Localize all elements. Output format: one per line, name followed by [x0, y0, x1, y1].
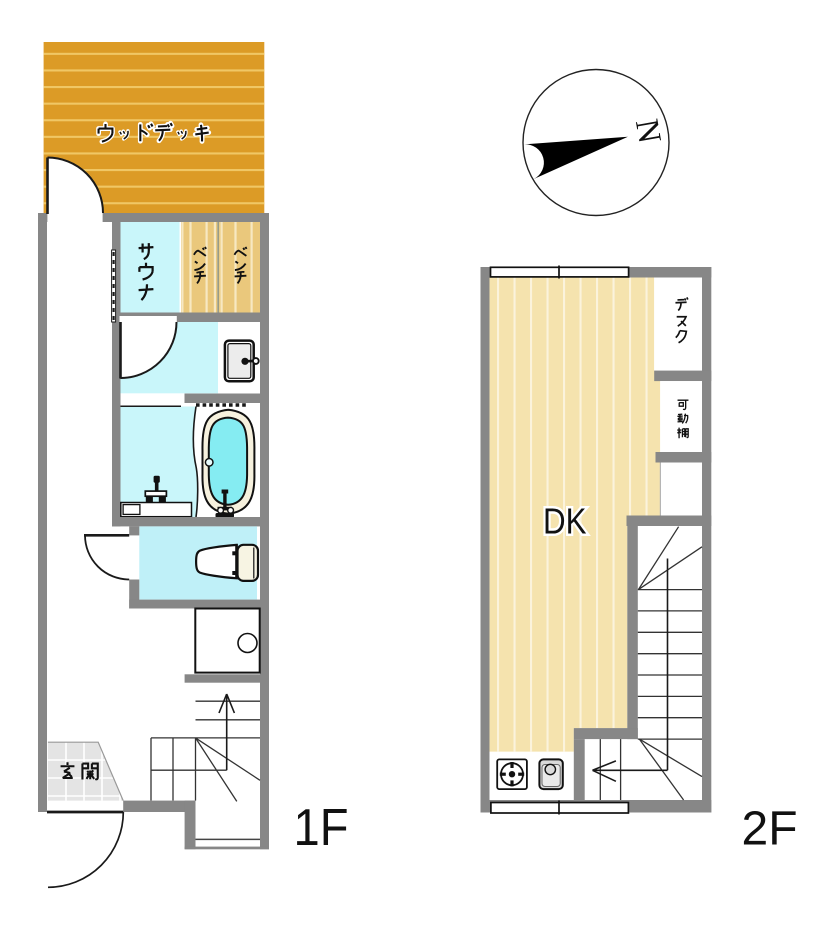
svg-text:DK: DK [543, 500, 587, 541]
svg-text:2F: 2F [742, 803, 798, 856]
svg-text:1F: 1F [294, 799, 349, 857]
